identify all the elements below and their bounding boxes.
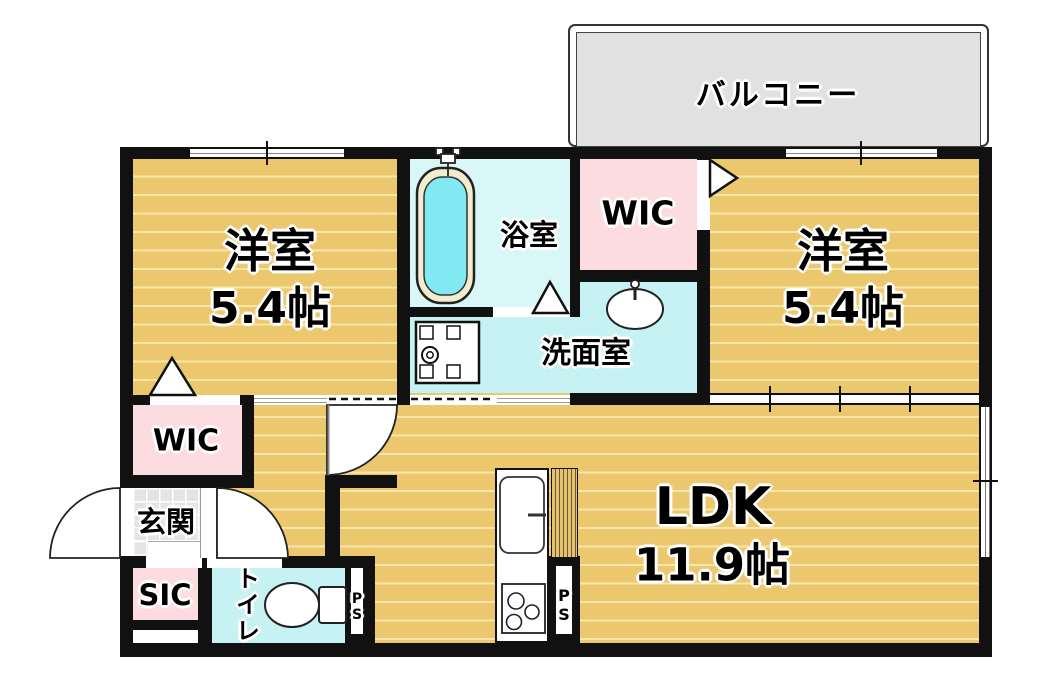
hall-door-swing [327,405,397,475]
bedroom-right-size: 5.4帖 [782,272,904,336]
floor-plan: バルコニー 洋室 5.4帖 洋室 5.4帖 浴室 WIC 洗面室 WIC 玄関 … [0,0,1039,676]
entrance-door-swing-exterior [50,488,120,558]
kitchen-stove [502,584,545,633]
balcony-label: バルコニー [696,70,860,114]
washroom-sink [607,280,663,329]
partition-ticks [770,386,910,412]
kitchen-sink [500,477,546,553]
wic-left-label: WIC [153,424,219,459]
washing-machine-pan [416,322,479,383]
sic-label: SIC [139,578,192,612]
ps-right-label: PS [555,586,574,624]
door-triangle-bathroom [533,282,568,313]
entrance-door-swing-interior [217,488,288,558]
fixture-overlay [0,0,1039,676]
door-triangle-wic-right [710,160,737,196]
ldk-size: 11.9帖 [634,529,790,594]
ps-left-label: PS [349,591,365,623]
door-triangle-wic-left [150,358,195,395]
wic-right-label: WIC [602,194,675,233]
bathroom-label: 浴室 [500,212,558,254]
washroom-label: 洗面室 [541,328,631,372]
toilet-fixture [265,583,346,627]
bedroom-left-size: 5.4帖 [209,272,331,336]
bathtub [417,148,474,303]
entrance-label: 玄関 [137,499,195,541]
toilet-label: トイレ [229,566,264,644]
